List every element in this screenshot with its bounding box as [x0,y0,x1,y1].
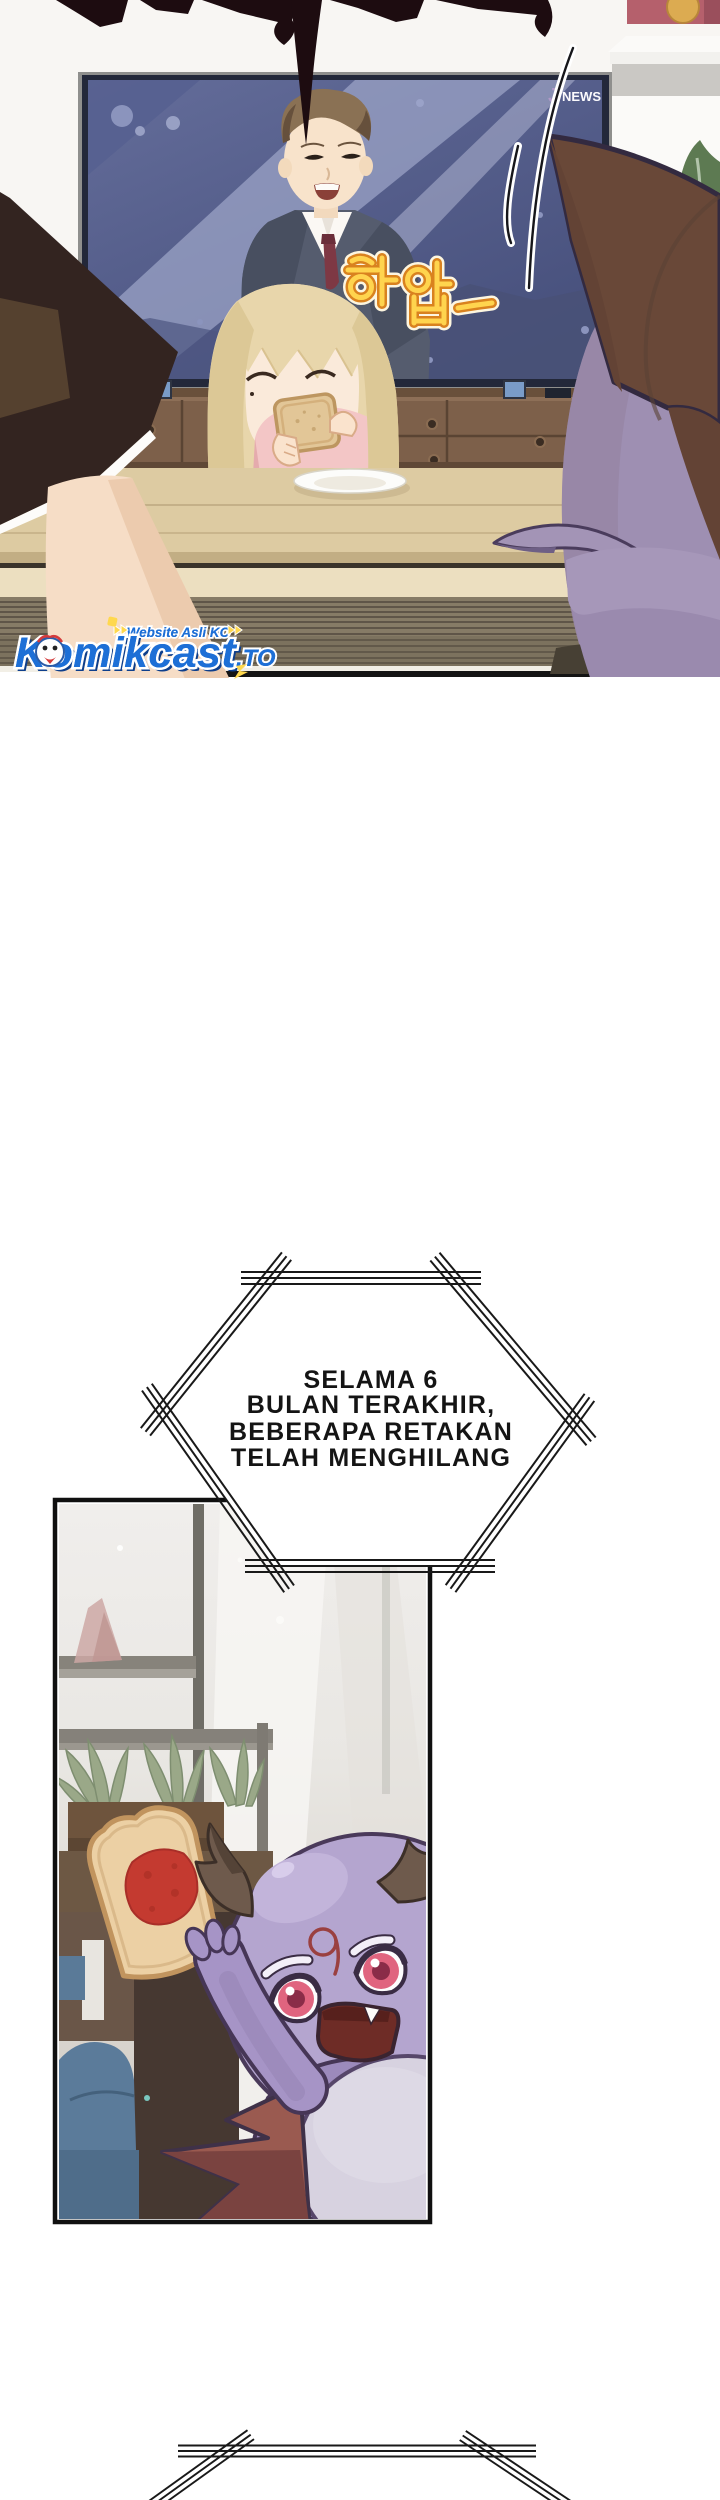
svg-text:NEWS: NEWS [562,89,601,104]
svg-text:SELAMA 6: SELAMA 6 [303,1366,438,1394]
svg-text:BULAN TERAKHIR,: BULAN TERAKHIR, [247,1391,496,1419]
svg-text:TELAH MENGHILANG: TELAH MENGHILANG [231,1444,511,1472]
svg-text:BEBERAPA RETAKAN: BEBERAPA RETAKAN [229,1418,513,1446]
